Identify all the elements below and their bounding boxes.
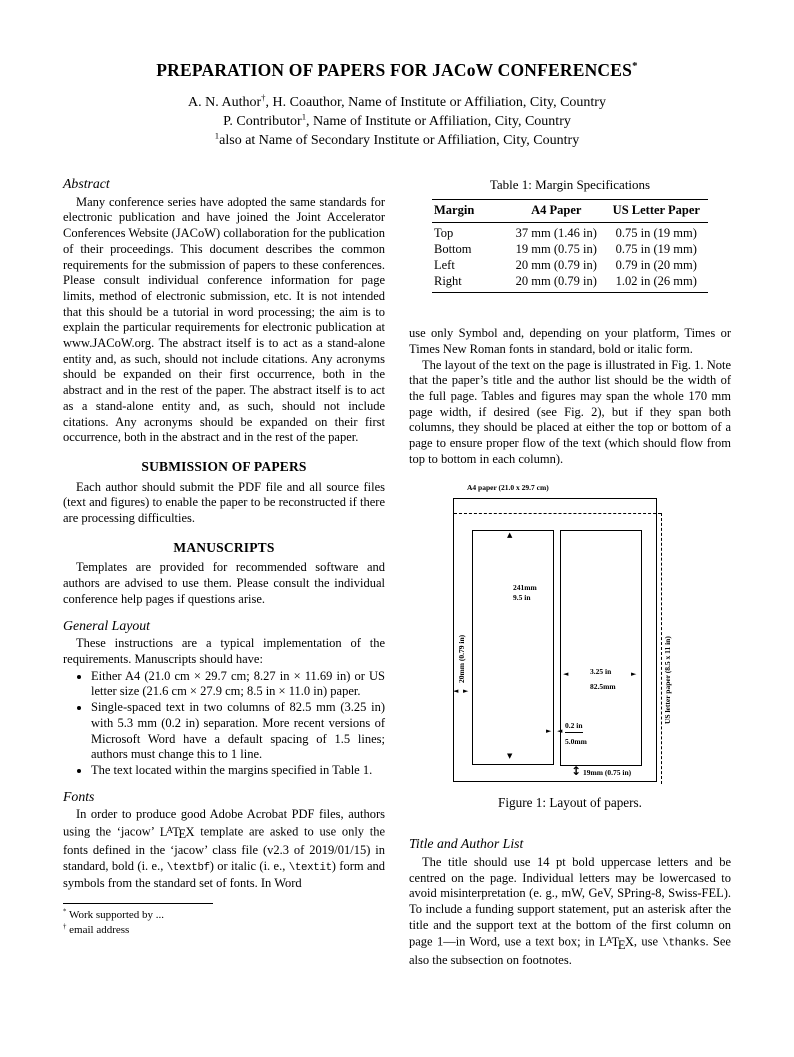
cell-usletter: 0.75 in (19 mm) [605,242,708,258]
cell-usletter: 1.02 in (26 mm) [605,274,708,293]
figure-gap-mm-label: 5.0mm [565,737,587,747]
author-list: A. N. Author†, H. Coauthor, Name of Inst… [0,93,794,150]
table-header-usletter: US Letter Paper [605,199,708,223]
two-column-body: Abstract Many conference series have ado… [63,176,731,969]
left-arrow-icon: ◄ [453,688,458,695]
cell-margin: Bottom [432,242,508,258]
author-line-2: P. Contributor1, Name of Institute or Af… [0,112,794,131]
submission-heading: SUBMISSION OF PAPERS [63,459,385,475]
manuscripts-heading: MANUSCRIPTS [63,540,385,556]
figure1-caption: Figure 1: Layout of papers. [409,795,731,811]
cell-usletter: 0.79 in (20 mm) [605,258,708,274]
left-arrow-icon: ◄ [563,671,568,678]
up-arrow-icon: ▲ [507,532,512,539]
table-header-row: Margin A4 Paper US Letter Paper [432,199,708,223]
footnotes: * Work supported by ... † email address [63,903,385,937]
figure-column-width-mm-label: 82.5mm [590,682,616,692]
title-author-heading: Title and Author List [409,836,731,852]
figure-a4-label: A4 paper (21.0 x 29.7 cm) [467,483,549,493]
list-item: Either A4 (21.0 cm × 29.7 cm; 8.27 in × … [91,669,385,700]
figure-usletter-right-dashed-line [661,513,662,784]
cell-margin: Left [432,258,508,274]
figure-column-height-label: 241mm 9.5 in [513,583,537,603]
figure1-diagram: A4 paper (21.0 x 29.7 cm) US letter pape… [409,481,731,786]
cell-usletter: 0.75 in (19 mm) [605,223,708,242]
footnote-rule [63,903,213,904]
table-header-margin: Margin [432,199,508,223]
paper-page: PREPARATION OF PAPERS FOR JACoW CONFEREN… [0,0,794,1057]
margin-specifications-table: Margin A4 Paper US Letter Paper Top 37 m… [432,199,708,294]
general-layout-heading: General Layout [63,618,385,634]
right-arrow-icon: ► [631,671,636,678]
paper-header: PREPARATION OF PAPERS FOR JACoW CONFEREN… [0,58,794,150]
abstract-paragraph: Many conference series have adopted the … [63,195,385,446]
figure-usletter-label: US letter paper (8.5 x 11 in) [663,626,673,724]
layout-paragraph: The layout of the text on the page is il… [409,358,731,468]
submission-paragraph: Each author should submit the PDF file a… [63,480,385,527]
abstract-heading: Abstract [63,176,385,192]
fonts-continued-paragraph: use only Symbol and, depending on your p… [409,326,731,357]
list-item: The text located within the margins spec… [91,763,385,779]
column-height-in: 9.5 in [513,593,537,603]
manuscripts-paragraph: Templates are provided for recommended s… [63,560,385,607]
fonts-paragraph: In order to produce good Adobe Acrobat P… [63,807,385,892]
title-author-paragraph: The title should use 14 pt bold uppercas… [409,855,731,969]
figure-left-column-rect [472,530,554,765]
figure-bottom-margin-label: 19mm (0.75 in) [583,768,631,778]
cell-a4: 20 mm (0.79 in) [508,258,605,274]
table-row: Bottom 19 mm (0.75 in) 0.75 in (19 mm) [432,242,708,258]
column-height-mm: 241mm [513,583,537,593]
requirements-list: Either A4 (21.0 cm × 29.7 cm; 8.27 in × … [78,669,385,779]
footnote-email: † email address [63,923,385,938]
cell-a4: 37 mm (1.46 in) [508,223,605,242]
figure-gap-in-label: 0.2 in [565,721,583,733]
footnote-work-supported: * Work supported by ... [63,908,385,923]
table-header-a4: A4 Paper [508,199,605,223]
right-arrow-icon: ► [463,688,468,695]
figure-left-margin-label: 20mm (0.79 in) [457,631,467,683]
cell-a4: 20 mm (0.79 in) [508,274,605,293]
figure-usletter-top-dashed-line [454,513,661,514]
left-column: Abstract Many conference series have ado… [63,176,385,969]
author-line-3: 1also at Name of Secondary Institute or … [0,131,794,150]
fonts-heading: Fonts [63,789,385,805]
cell-margin: Top [432,223,508,242]
table1-caption: Table 1: Margin Specifications [409,177,731,193]
right-arrow-icon: ► [546,728,551,735]
down-arrow-icon: ▼ [507,753,512,760]
table-row: Top 37 mm (1.46 in) 0.75 in (19 mm) [432,223,708,242]
cell-margin: Right [432,274,508,293]
general-layout-intro: These instructions are a typical impleme… [63,636,385,667]
up-down-arrow-icon: ↕ [571,764,581,778]
table-row: Right 20 mm (0.79 in) 1.02 in (26 mm) [432,274,708,293]
right-column: Table 1: Margin Specifications Margin A4… [409,176,731,969]
left-arrow-icon: ◄ [557,728,562,735]
author-line-1: A. N. Author†, H. Coauthor, Name of Inst… [0,93,794,112]
list-item: Single-spaced text in two columns of 82.… [91,700,385,763]
paper-title: PREPARATION OF PAPERS FOR JACoW CONFEREN… [0,58,794,82]
cell-a4: 19 mm (0.75 in) [508,242,605,258]
figure-column-width-in-label: 3.25 in [590,667,611,677]
table-row: Left 20 mm (0.79 in) 0.79 in (20 mm) [432,258,708,274]
